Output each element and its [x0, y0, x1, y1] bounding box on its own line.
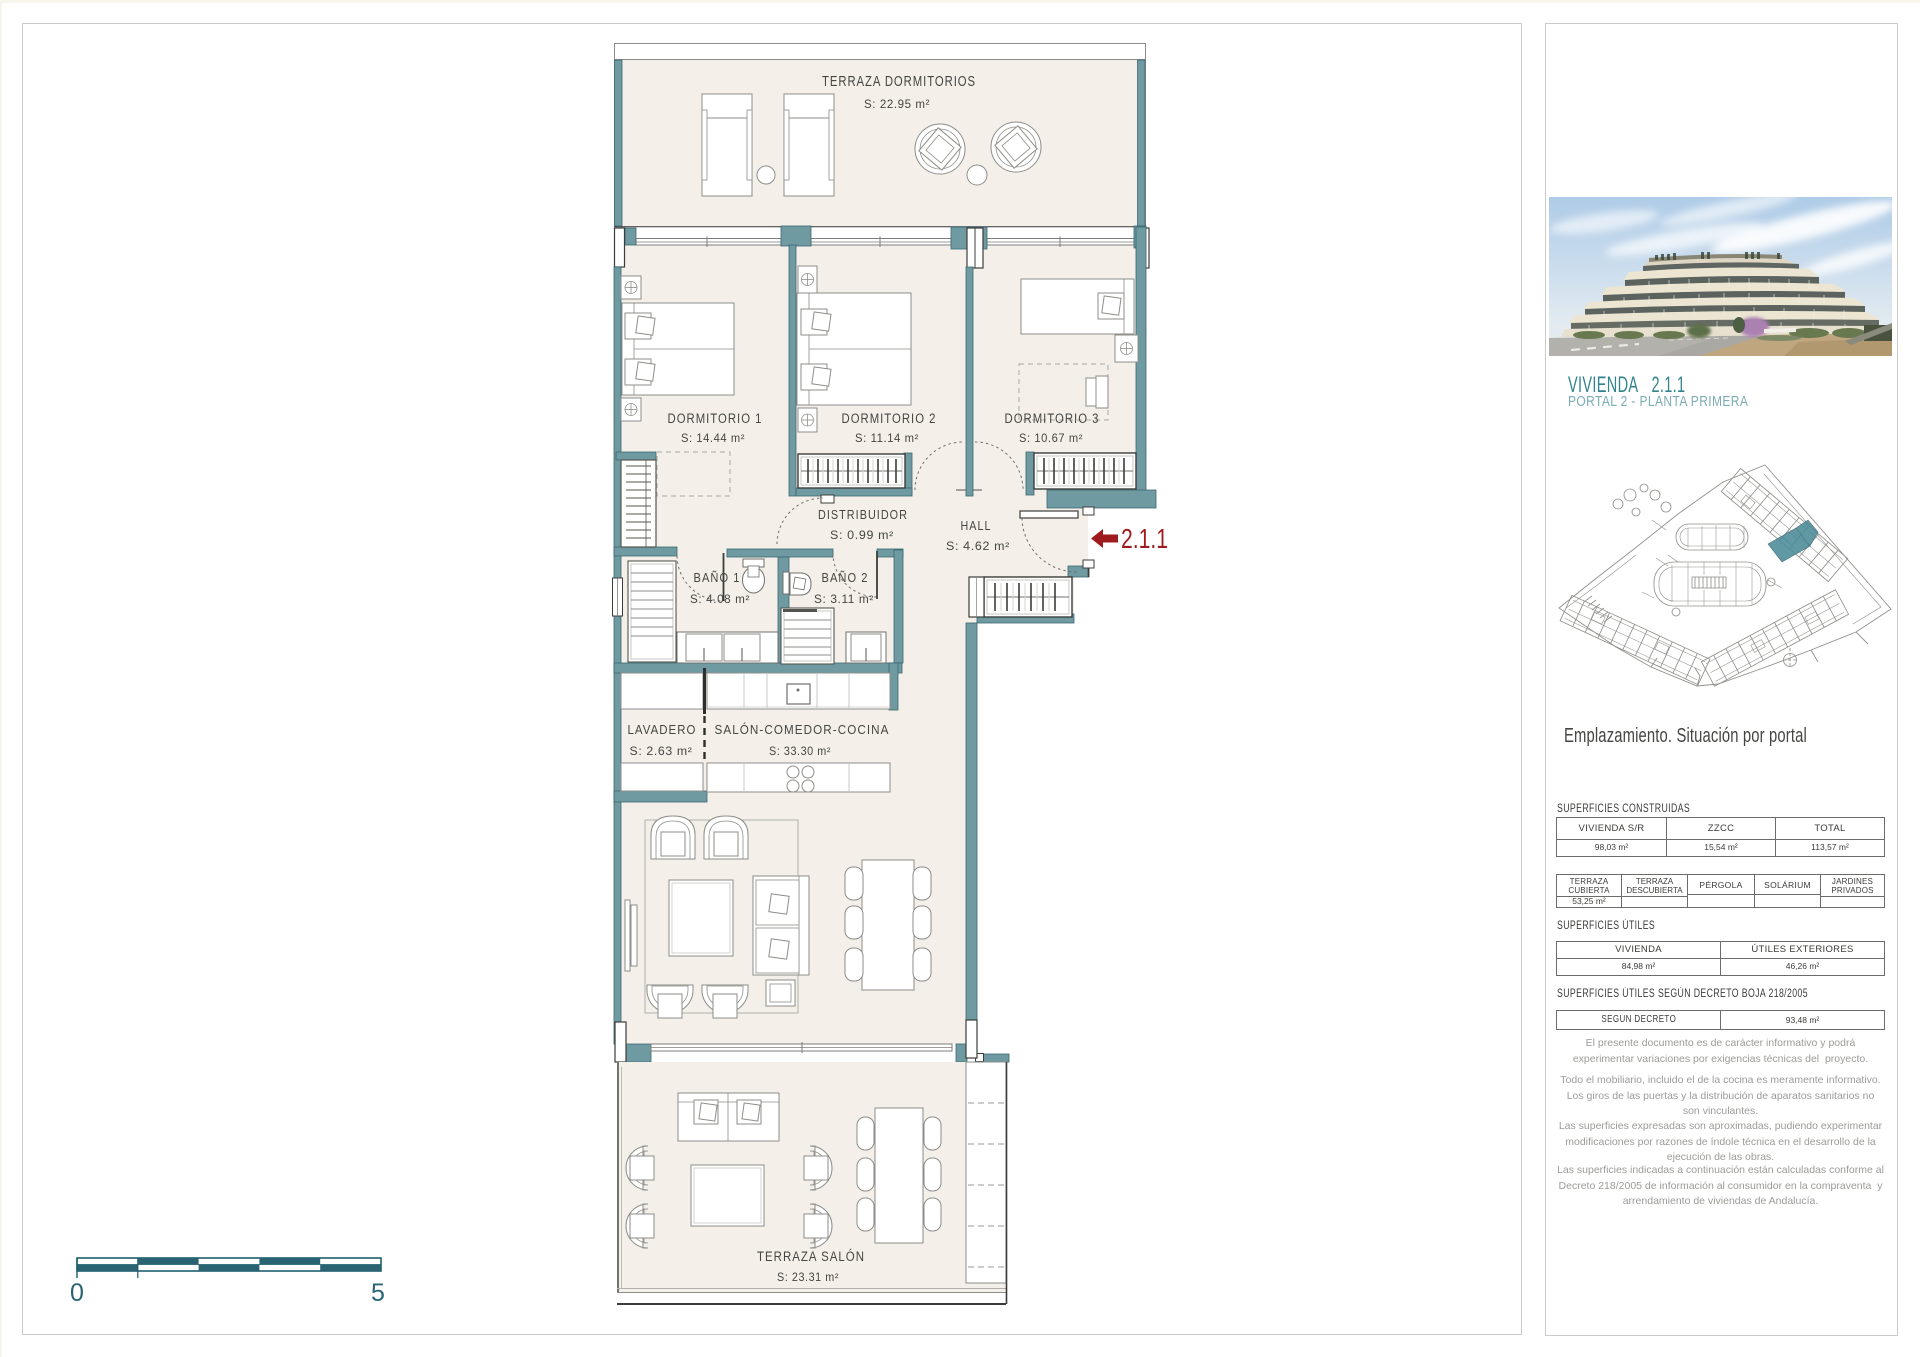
svg-text:0: 0 — [70, 1279, 84, 1307]
svg-text:S: 22.95 m²: S: 22.95 m² — [864, 97, 930, 111]
svg-text:S: 4.62 m²: S: 4.62 m² — [946, 541, 1010, 553]
svg-text:S: 0.99 m²: S: 0.99 m² — [830, 530, 894, 542]
svg-text:5: 5 — [371, 1279, 385, 1307]
svg-text:2.1.1: 2.1.1 — [1121, 523, 1168, 554]
svg-text:BAÑO 1: BAÑO 1 — [694, 571, 741, 585]
svg-text:S: 23.31 m²: S: 23.31 m² — [777, 1272, 839, 1284]
svg-text:DORMITORIO 2: DORMITORIO 2 — [842, 411, 937, 426]
svg-text:LAVADERO: LAVADERO — [628, 722, 697, 737]
svg-text:S: 10.67 m²: S: 10.67 m² — [1019, 433, 1083, 445]
svg-text:HALL: HALL — [961, 519, 992, 533]
svg-text:DISTRIBUIDOR: DISTRIBUIDOR — [818, 508, 908, 522]
svg-text:DORMITORIO 1: DORMITORIO 1 — [668, 411, 763, 426]
svg-text:S: 33.30 m²: S: 33.30 m² — [769, 746, 831, 758]
svg-text:BAÑO 2: BAÑO 2 — [822, 571, 869, 585]
svg-text:SALÓN-COMEDOR-COCINA: SALÓN-COMEDOR-COCINA — [715, 722, 890, 737]
svg-text:S: 4.08 m²: S: 4.08 m² — [690, 594, 750, 606]
svg-text:S: 3.11 m²: S: 3.11 m² — [814, 594, 874, 606]
svg-text:TERRAZA SALÓN: TERRAZA SALÓN — [757, 1249, 865, 1264]
svg-text:S: 14.44 m²: S: 14.44 m² — [681, 433, 745, 445]
svg-text:TERRAZA DORMITORIOS: TERRAZA DORMITORIOS — [822, 74, 976, 90]
svg-text:S: 2.63 m²: S: 2.63 m² — [630, 746, 693, 758]
svg-text:DORMITORIO 3: DORMITORIO 3 — [1005, 411, 1100, 426]
svg-text:S: 11.14 m²: S: 11.14 m² — [855, 433, 919, 445]
